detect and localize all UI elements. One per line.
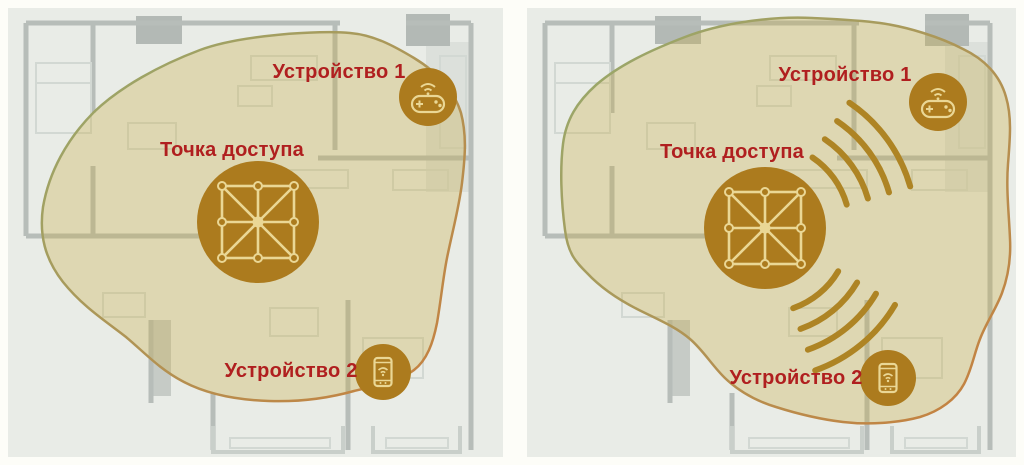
device2-label: Устройство 2 xyxy=(224,361,357,381)
device2-label: Устройство 2 xyxy=(729,368,862,388)
panel-coverage-without-signal: Точка доступа Устройство 1 Устройство 2 xyxy=(8,8,503,457)
device1-node xyxy=(399,68,457,126)
mesh-network-icon xyxy=(725,188,805,268)
panel-coverage-with-signal: Точка доступа Устройство 1 Устройство 2 xyxy=(527,8,1016,457)
mesh-network-icon xyxy=(218,182,298,262)
device1-label: Устройство 1 xyxy=(272,62,405,82)
access-point-label: Точка доступа xyxy=(160,140,304,160)
scene-right xyxy=(527,8,1016,457)
device1-label: Устройство 1 xyxy=(778,65,911,85)
device2-node xyxy=(355,344,411,400)
device1-node xyxy=(909,73,967,131)
scene-left xyxy=(8,8,503,457)
device2-node xyxy=(860,350,916,406)
access-point-node xyxy=(704,167,826,289)
figure: Точка доступа Устройство 1 Устройство 2 xyxy=(0,0,1024,465)
access-point-node xyxy=(197,161,319,283)
access-point-label: Точка доступа xyxy=(660,142,804,162)
